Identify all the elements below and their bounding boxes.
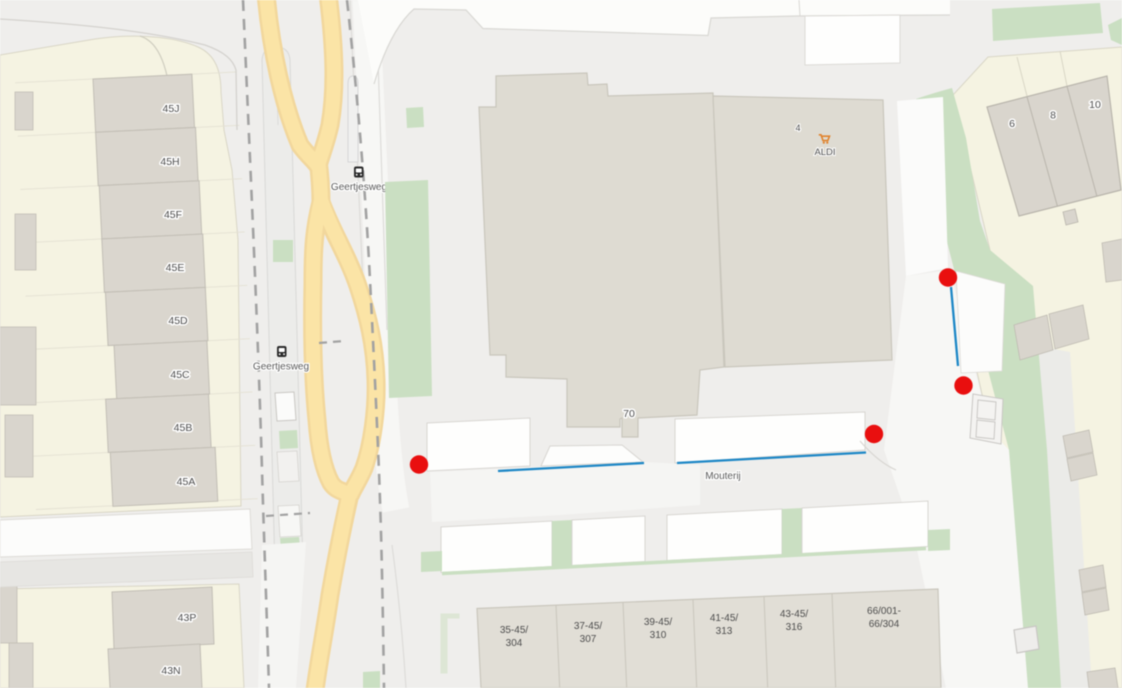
svg-text:45B: 45B [174, 422, 193, 434]
svg-text:45E: 45E [166, 262, 185, 274]
svg-text:304: 304 [506, 638, 523, 649]
svg-text:45J: 45J [163, 103, 180, 115]
svg-text:4: 4 [795, 123, 800, 133]
svg-text:10: 10 [1089, 99, 1101, 111]
svg-text:313: 313 [716, 626, 733, 637]
svg-text:ALDI: ALDI [814, 147, 835, 158]
svg-text:66/001-: 66/001- [867, 606, 901, 617]
svg-text:37-45/: 37-45/ [574, 621, 603, 632]
svg-text:35-45/: 35-45/ [500, 625, 529, 636]
svg-text:39-45/: 39-45/ [644, 617, 673, 628]
svg-text:45C: 45C [170, 369, 190, 381]
svg-text:316: 316 [786, 622, 803, 633]
svg-text:45D: 45D [168, 315, 188, 327]
svg-text:6: 6 [1009, 118, 1015, 130]
svg-text:66/304: 66/304 [869, 619, 900, 630]
svg-text:43P: 43P [178, 612, 197, 624]
svg-text:Geertjesweg: Geertjesweg [253, 362, 309, 373]
svg-text:Geertjesweg: Geertjesweg [331, 182, 387, 193]
svg-text:45F: 45F [164, 209, 182, 221]
svg-text:70: 70 [623, 408, 635, 420]
svg-text:43N: 43N [161, 665, 180, 677]
svg-text:Mouterij: Mouterij [705, 471, 741, 482]
svg-text:45A: 45A [177, 476, 196, 488]
svg-text:310: 310 [650, 630, 667, 641]
svg-text:8: 8 [1050, 110, 1056, 122]
svg-text:45H: 45H [160, 156, 179, 168]
svg-text:307: 307 [580, 634, 597, 645]
svg-text:43-45/: 43-45/ [780, 609, 809, 620]
svg-text:41-45/: 41-45/ [710, 613, 739, 624]
